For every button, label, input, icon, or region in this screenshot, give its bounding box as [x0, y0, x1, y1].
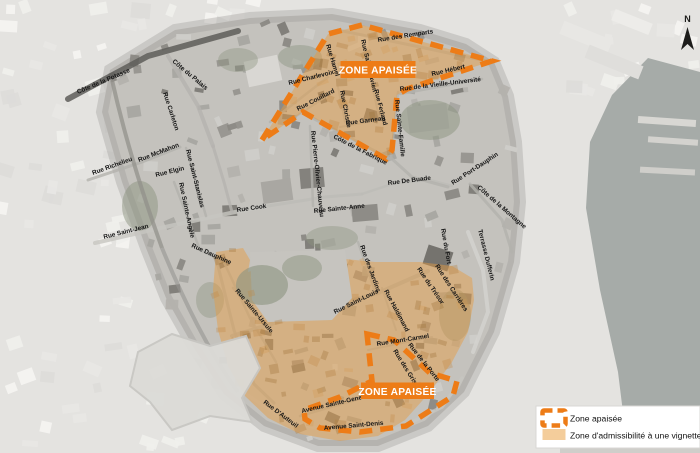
zone-label-north: ZONE APAISÉE	[339, 61, 417, 78]
zone-label-south: ZONE APAISÉE	[358, 383, 436, 400]
legend: Zone apaisée Zone d'admissibilité à une …	[536, 406, 700, 448]
map-screenshot: Côte de la PotasseCôte du PalaisRue Carl…	[0, 0, 700, 453]
zone-label-north-text: ZONE APAISÉE	[339, 64, 417, 77]
legend-item-zone-apaisee: Zone apaisée	[570, 414, 622, 424]
filled-zone-swatch-icon	[543, 429, 566, 440]
zone-label-south-text: ZONE APAISÉE	[358, 385, 436, 398]
map-canvas: Côte de la PotasseCôte du PalaisRue Carl…	[0, 0, 700, 453]
north-arrow-label: N	[684, 14, 691, 24]
legend-item-vignette: Zone d'admissibilité à une vignette	[570, 431, 700, 441]
